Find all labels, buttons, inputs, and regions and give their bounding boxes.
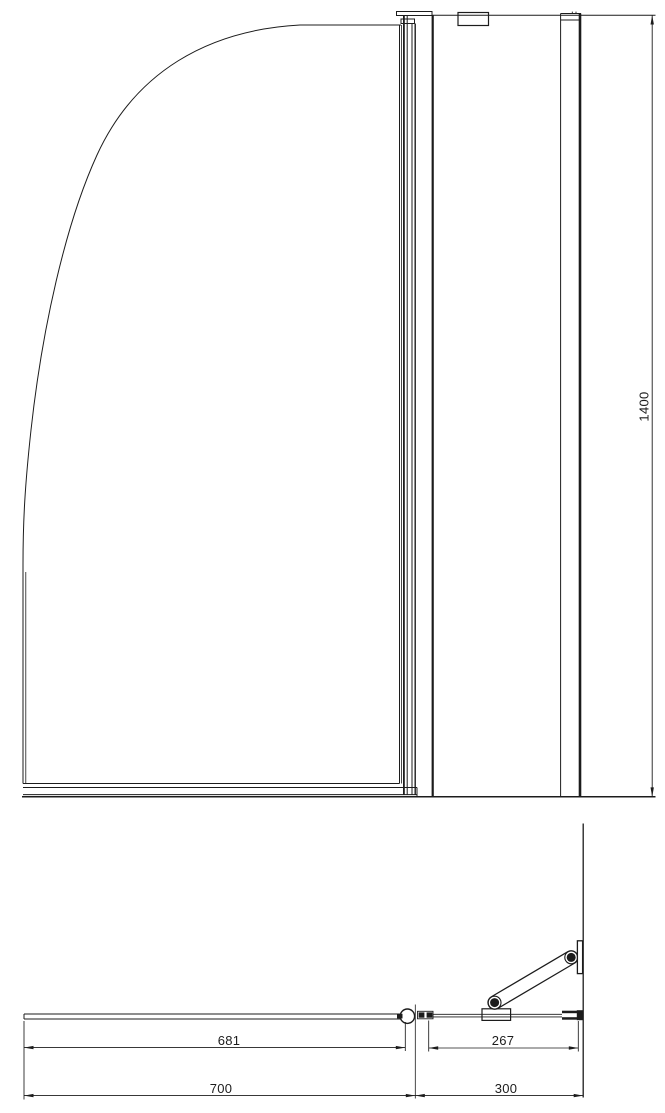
arrowhead-right: [406, 1094, 416, 1097]
hinge-clamp-pad: [419, 1012, 425, 1017]
wall-clamp-block: [577, 1010, 583, 1020]
wall-mount-bracket: [577, 941, 582, 974]
arm-span-dimension-label: 267: [485, 1034, 521, 1047]
arrowhead-down: [651, 787, 654, 796]
arrowhead-right: [569, 1046, 579, 1049]
hinge-clamp-pad2: [427, 1012, 433, 1017]
wall-bracket-front: [458, 13, 489, 26]
pivot-top-cap: [397, 12, 433, 16]
arrowhead-left: [24, 1046, 34, 1049]
technical-drawing-page: 1400 681 267 700 300: [0, 0, 665, 1113]
arrowhead-up: [651, 15, 654, 24]
arrowhead-left: [429, 1046, 439, 1049]
return-width-dimension-label: 300: [488, 1082, 524, 1095]
arm-lower-pivot: [490, 998, 499, 1007]
arrowhead-left: [415, 1094, 425, 1097]
wall-glass-clamp: [562, 1010, 583, 1020]
arrowhead-right: [396, 1046, 406, 1049]
front-elevation-view: [22, 12, 656, 797]
arm-body-fill: [495, 957, 572, 1002]
pivot-arm: [488, 951, 577, 1009]
drawing-canvas: [0, 0, 665, 1113]
arrowhead-right: [574, 1094, 584, 1097]
door-width-dimension-label: 700: [203, 1082, 239, 1095]
height-dimension-label: 1400: [637, 386, 650, 426]
door-panel-outline: [23, 25, 401, 784]
arm-upper-pivot: [567, 953, 576, 962]
arrowhead-left: [24, 1094, 34, 1097]
plan-view: [24, 824, 583, 1100]
glass-width-dimension-label: 681: [211, 1034, 247, 1047]
